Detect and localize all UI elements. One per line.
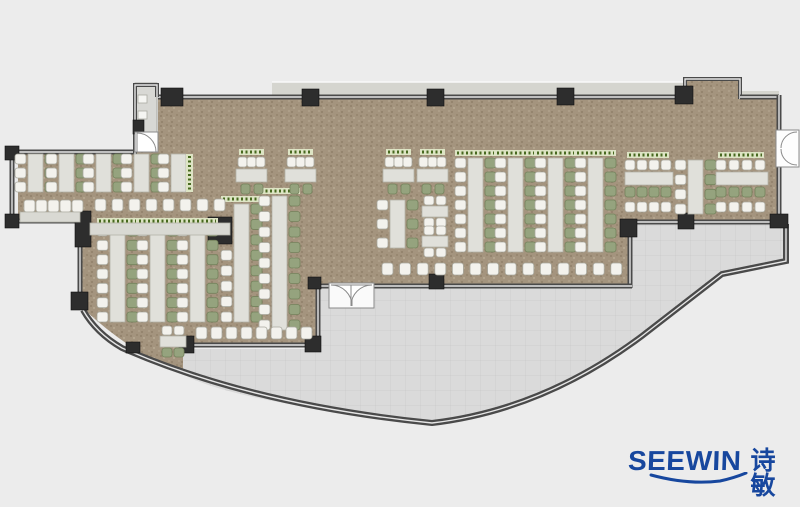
chair (452, 263, 463, 275)
chair (197, 199, 208, 211)
chair (455, 158, 466, 168)
chair (535, 158, 546, 168)
counter (90, 223, 230, 235)
chair (290, 184, 299, 194)
chair (137, 240, 148, 250)
floor-plan-drawing (0, 0, 800, 507)
chair (525, 242, 536, 252)
chair (146, 199, 157, 211)
chair (95, 199, 106, 211)
chair (455, 242, 466, 252)
chair (649, 202, 659, 212)
chair (407, 219, 418, 229)
structural-column (620, 219, 637, 237)
chair (259, 227, 270, 237)
chair (15, 168, 26, 178)
chair (121, 182, 132, 192)
table-group (46, 154, 87, 192)
chair (742, 187, 752, 197)
chair (180, 199, 191, 211)
chair (289, 196, 300, 206)
chair (525, 158, 536, 168)
chair (83, 182, 94, 192)
chair (436, 226, 446, 235)
structural-column (161, 88, 183, 106)
chair (388, 184, 397, 194)
chair (535, 172, 546, 182)
dining-table (272, 196, 287, 330)
chair (742, 160, 752, 170)
chair (177, 269, 188, 279)
chair (495, 186, 506, 196)
exterior-element (272, 82, 685, 95)
chair (485, 172, 496, 182)
chair (455, 172, 466, 182)
chair (259, 212, 270, 222)
table-group (625, 152, 673, 212)
chair (72, 200, 83, 212)
chair (485, 228, 496, 238)
chair (97, 255, 108, 265)
dining-table (383, 169, 414, 182)
chair (97, 283, 108, 293)
chair (535, 186, 546, 196)
chair (495, 200, 506, 210)
chair (422, 184, 431, 194)
chair (535, 214, 546, 224)
structural-column (429, 274, 444, 289)
chair (435, 263, 446, 275)
chair (259, 305, 270, 315)
chair (238, 157, 247, 167)
chair (407, 200, 418, 210)
chair (207, 255, 218, 265)
chair (177, 283, 188, 293)
chair (163, 199, 174, 211)
chair (97, 269, 108, 279)
chair (259, 289, 270, 299)
dining-table (190, 226, 205, 322)
chair (377, 200, 388, 210)
chair (174, 348, 184, 357)
chair (305, 157, 314, 167)
chair (158, 182, 169, 192)
chair (137, 312, 148, 322)
chair (455, 200, 466, 210)
chair (705, 175, 716, 185)
chair (177, 240, 188, 250)
chair (46, 168, 57, 178)
dining-table (285, 169, 316, 182)
chair (637, 202, 647, 212)
chair (661, 202, 671, 212)
dining-table (588, 158, 603, 252)
chair (127, 298, 138, 308)
chair (535, 242, 546, 252)
chair (254, 184, 263, 194)
chair (158, 168, 169, 178)
chair (137, 283, 148, 293)
structural-column (770, 214, 788, 228)
table-group (83, 154, 124, 192)
chair (437, 157, 446, 167)
chair (485, 214, 496, 224)
chair (575, 242, 586, 252)
chair (24, 200, 35, 212)
chair (137, 269, 148, 279)
chair (127, 255, 138, 265)
logo-brand-text: SEEWIN (628, 447, 742, 474)
chair (162, 326, 172, 335)
chair (256, 157, 265, 167)
chair (394, 157, 403, 167)
planter-box (186, 154, 193, 192)
chair (729, 160, 739, 170)
chair (535, 228, 546, 238)
chair (575, 214, 586, 224)
chair (675, 189, 686, 199)
structural-column (308, 277, 321, 289)
chair (400, 263, 411, 275)
chair (605, 186, 616, 196)
chair (177, 255, 188, 265)
chair (401, 184, 410, 194)
dining-table (716, 172, 768, 185)
chair (137, 255, 148, 265)
chair (455, 228, 466, 238)
chair (97, 298, 108, 308)
chair (455, 186, 466, 196)
chair (705, 160, 716, 170)
chair (428, 157, 437, 167)
chair (167, 255, 178, 265)
chair (256, 327, 267, 339)
chair (174, 326, 184, 335)
chair (661, 160, 671, 170)
chair (167, 298, 178, 308)
chair (525, 172, 536, 182)
chair (162, 348, 172, 357)
chair (303, 184, 312, 194)
chair (424, 226, 434, 235)
chair (287, 157, 296, 167)
dining-table (417, 169, 448, 182)
floor-plan-page: SEEWIN 诗敏 (0, 0, 800, 507)
chair (705, 189, 716, 199)
chair (247, 157, 256, 167)
chair (675, 160, 686, 170)
chair (565, 186, 576, 196)
chair (289, 305, 300, 315)
chair (455, 214, 466, 224)
dining-table (28, 154, 43, 192)
chair (289, 227, 300, 237)
chair (575, 158, 586, 168)
dining-table (236, 169, 267, 182)
chair (625, 160, 635, 170)
chair (241, 184, 250, 194)
chair (211, 327, 222, 339)
chair (565, 242, 576, 252)
chair (485, 200, 496, 210)
structural-column (71, 292, 88, 310)
chair (436, 248, 446, 257)
chair (46, 182, 57, 192)
chair (97, 312, 108, 322)
chair (385, 157, 394, 167)
table-group (455, 150, 496, 252)
dining-table (134, 154, 149, 192)
chair (705, 204, 716, 214)
chair (196, 327, 207, 339)
chair (289, 258, 300, 268)
chair (593, 263, 604, 275)
chair (576, 263, 587, 275)
chair-row (24, 200, 83, 212)
chair (755, 187, 765, 197)
chair (214, 199, 225, 211)
chair (675, 175, 686, 185)
chair (424, 248, 434, 257)
chair (485, 186, 496, 196)
chair (716, 187, 726, 197)
chair (565, 200, 576, 210)
chair (289, 243, 300, 253)
chair (158, 154, 169, 164)
chair (403, 157, 412, 167)
chair (226, 327, 237, 339)
chair (755, 160, 765, 170)
chair (436, 196, 446, 205)
chair (121, 154, 132, 164)
chair (167, 240, 178, 250)
chair (611, 263, 622, 275)
chair (301, 327, 312, 339)
chair (716, 202, 726, 212)
chair (605, 228, 616, 238)
chair (523, 263, 534, 275)
chair (419, 157, 428, 167)
chair (424, 196, 434, 205)
dining-table (468, 158, 483, 252)
chair (661, 187, 671, 197)
chair (289, 274, 300, 284)
chair (525, 214, 536, 224)
structural-column (5, 214, 19, 228)
chair (286, 327, 297, 339)
chair (565, 214, 576, 224)
exterior-element (138, 111, 147, 119)
chair (565, 228, 576, 238)
chair (505, 263, 516, 275)
chair (221, 250, 232, 260)
chair (259, 274, 270, 284)
chair (565, 172, 576, 182)
chair (675, 204, 686, 214)
chair (649, 187, 659, 197)
chair (259, 258, 270, 268)
chair (271, 327, 282, 339)
dining-table (422, 206, 448, 217)
chair (83, 168, 94, 178)
chair (259, 196, 270, 206)
table-group (495, 150, 536, 252)
chair (495, 172, 506, 182)
chair (221, 281, 232, 291)
chair (177, 312, 188, 322)
chair (575, 228, 586, 238)
chair (207, 269, 218, 279)
chair (649, 160, 659, 170)
structural-column (126, 342, 140, 353)
chair (525, 186, 536, 196)
dining-table (625, 172, 673, 185)
dining-table (234, 204, 249, 322)
dining-table (171, 154, 186, 192)
chair (48, 200, 59, 212)
chair (407, 238, 418, 248)
dining-table (688, 160, 703, 214)
chair (535, 200, 546, 210)
seewin-logo: SEEWIN 诗敏 (628, 447, 800, 487)
chair (46, 154, 57, 164)
chair (637, 187, 647, 197)
dining-table (96, 154, 111, 192)
table-group (377, 200, 418, 248)
dining-table (110, 226, 125, 322)
chair (137, 298, 148, 308)
chair (488, 263, 499, 275)
dining-table (548, 158, 563, 252)
chair (129, 199, 140, 211)
chair (495, 228, 506, 238)
chair (605, 214, 616, 224)
chair (112, 199, 123, 211)
chair (97, 240, 108, 250)
dining-table (59, 154, 74, 192)
counter (20, 212, 80, 222)
dining-table (160, 336, 186, 347)
chair (485, 242, 496, 252)
chair (417, 263, 428, 275)
chair (296, 157, 305, 167)
chair (15, 182, 26, 192)
chair (605, 242, 616, 252)
chair (377, 238, 388, 248)
structural-column (302, 89, 319, 106)
chair (207, 298, 218, 308)
chair (289, 289, 300, 299)
chair (289, 212, 300, 222)
chair (167, 312, 178, 322)
chair (575, 200, 586, 210)
chair (382, 263, 393, 275)
chair (121, 168, 132, 178)
dining-table (150, 226, 165, 322)
chair (221, 297, 232, 307)
table-group (121, 154, 162, 192)
chair (470, 263, 481, 275)
chair (221, 266, 232, 276)
chair (575, 186, 586, 196)
chair (716, 160, 726, 170)
table-group (716, 152, 768, 212)
chair (485, 158, 496, 168)
chair (625, 202, 635, 212)
table-group (575, 150, 616, 252)
chair (565, 158, 576, 168)
chair (605, 158, 616, 168)
exterior-element (138, 95, 147, 103)
chair (221, 312, 232, 322)
structural-column (678, 213, 694, 229)
structural-column (557, 88, 574, 105)
chair (605, 200, 616, 210)
chair (377, 219, 388, 229)
chair (127, 269, 138, 279)
chair (167, 283, 178, 293)
chair (36, 200, 47, 212)
chair (259, 243, 270, 253)
chair (495, 158, 506, 168)
chair (525, 228, 536, 238)
chair (127, 283, 138, 293)
chair (637, 160, 647, 170)
structural-column (427, 89, 444, 106)
chair (742, 202, 752, 212)
chair (127, 312, 138, 322)
table-group (535, 150, 576, 252)
chair (495, 214, 506, 224)
chair (241, 327, 252, 339)
structural-column (675, 86, 693, 104)
chair (558, 263, 569, 275)
chair (540, 263, 551, 275)
logo-swoosh-icon (648, 472, 750, 486)
chair (435, 184, 444, 194)
table-group (158, 154, 186, 192)
chair (575, 172, 586, 182)
chair (207, 312, 218, 322)
chair (755, 202, 765, 212)
chair (177, 298, 188, 308)
dining-table (390, 200, 405, 248)
chair (495, 242, 506, 252)
chair (729, 187, 739, 197)
chair (625, 187, 635, 197)
chair (15, 154, 26, 164)
logo-cjk-text: 诗敏 (750, 448, 800, 498)
chair (525, 200, 536, 210)
chair (60, 200, 71, 212)
dining-table (508, 158, 523, 252)
chair (127, 240, 138, 250)
chair (207, 240, 218, 250)
chair (167, 269, 178, 279)
dining-table (422, 236, 448, 247)
chair (207, 283, 218, 293)
chair (605, 172, 616, 182)
chair (729, 202, 739, 212)
chair (83, 154, 94, 164)
